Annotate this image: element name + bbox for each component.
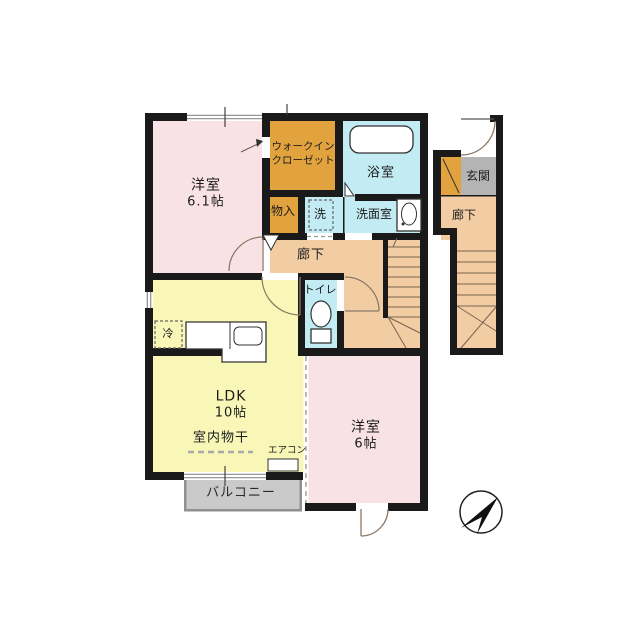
partition-ldk-bedroom2: [304, 356, 309, 503]
ldk-name: LDK: [215, 387, 248, 405]
room-label-hallway-2f: 廊下: [297, 248, 325, 265]
floorplan-page: 洋室 6.1帖 ウォークイン クローゼット 浴室 物入 洗 洗面室 廊下 トイレ…: [0, 0, 640, 640]
bathtub: [350, 126, 413, 153]
room-label-hallway-1f: 廊下: [452, 208, 476, 224]
bedroom-1-size: 6.1帖: [187, 195, 225, 212]
room-label-washroom: 洗面室: [356, 207, 392, 223]
refrigerator-name: 冷: [163, 327, 174, 341]
entrance-name: 玄関: [466, 169, 490, 185]
bedroom-1-name: 洋室: [187, 176, 225, 194]
wic-name-line2: クローゼット: [272, 154, 335, 168]
room-label-walk-in-closet: ウォークイン クローゼット: [272, 140, 335, 167]
room-label-bedroom-1: 洋室 6.1帖: [187, 176, 225, 211]
hallway-1f-name: 廊下: [452, 208, 476, 224]
room-label-toilet: トイレ: [304, 283, 337, 297]
aircon-unit: [268, 459, 298, 471]
bedroom-2-size: 6帖: [351, 437, 381, 454]
floorplan-drawing: [0, 0, 640, 640]
hallway-2f-name: 廊下: [297, 248, 325, 265]
laundry-name: 洗: [314, 207, 326, 223]
label-air-conditioner: エアコン: [268, 445, 306, 457]
north-arrow-icon: [460, 491, 502, 534]
label-refrigerator: 冷: [163, 327, 174, 341]
air-conditioner-name: エアコン: [268, 445, 306, 457]
room-label-bedroom-2: 洋室 6帖: [351, 418, 381, 453]
toilet-tank: [311, 329, 331, 343]
room-label-laundry: 洗: [314, 207, 326, 223]
balcony-name: バルコニー: [206, 486, 276, 503]
room-label-entrance: 玄関: [466, 169, 490, 185]
room-label-ldk: LDK 10帖: [215, 387, 248, 422]
label-indoor-drying: 室内物干: [193, 431, 249, 448]
toilet-name: トイレ: [304, 283, 337, 297]
room-label-storage: 物入: [271, 204, 295, 220]
ldk-size: 10帖: [215, 406, 248, 423]
stairs-1f-area: [457, 240, 496, 348]
washroom-name: 洗面室: [356, 207, 392, 223]
room-label-bathroom: 浴室: [367, 166, 395, 183]
bedroom-2-name: 洋室: [351, 418, 381, 436]
kitchen-sink: [234, 327, 262, 345]
bathroom-name: 浴室: [367, 166, 395, 183]
indoor-drying-name: 室内物干: [193, 431, 249, 448]
wic-name-line1: ウォークイン: [272, 140, 335, 154]
room-label-balcony: バルコニー: [206, 486, 276, 503]
storage-name: 物入: [271, 204, 295, 220]
toilet-bowl: [311, 301, 331, 327]
